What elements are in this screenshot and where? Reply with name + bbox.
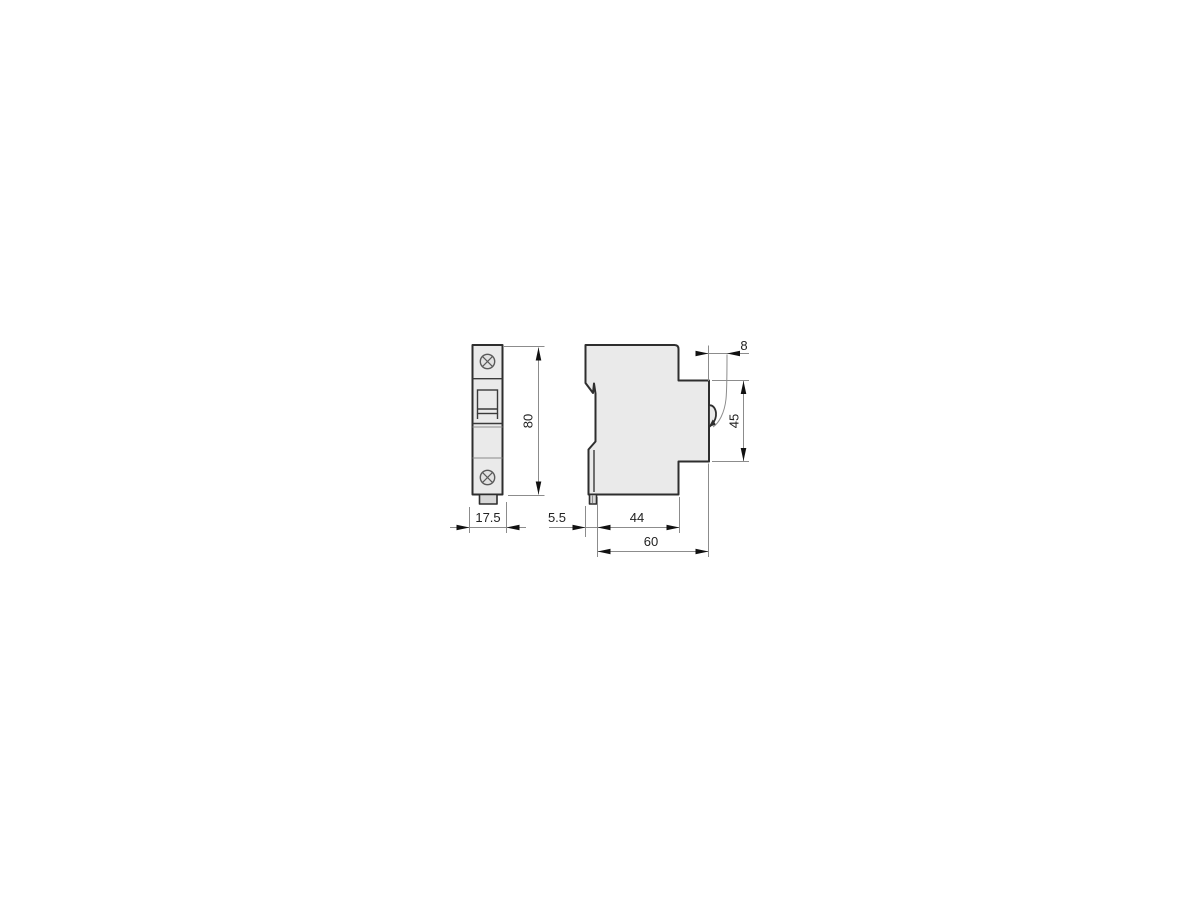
- dim-arrow: [727, 351, 740, 357]
- dim-label-front-height: 45: [726, 414, 741, 428]
- dim-label-base-depth: 44: [630, 510, 644, 525]
- dimension-height: 80: [504, 347, 545, 496]
- dim-arrow: [741, 381, 747, 394]
- dim-arrow: [741, 448, 747, 461]
- dim-arrow: [507, 525, 520, 531]
- dim-arrow: [573, 525, 586, 531]
- dim-label-handle-offset: 8: [740, 338, 747, 353]
- dimension-width: 17.5: [450, 502, 526, 533]
- dim-label-rail-offset: 5.5: [548, 510, 566, 525]
- dimension-drawing: 80 17.5 8 45 5.5: [0, 0, 1200, 900]
- dimension-base-depth: 44: [598, 497, 680, 557]
- side-view: [586, 345, 717, 504]
- dim-arrow: [598, 525, 611, 531]
- dim-arrow: [696, 549, 709, 555]
- screw-terminal-top-icon: [480, 354, 494, 368]
- screw-terminal-bottom-icon: [480, 470, 494, 484]
- dim-label-total-depth: 60: [644, 534, 658, 549]
- toggle-lever: [709, 405, 716, 427]
- dim-arrow: [457, 525, 470, 531]
- dimension-front-height: 45: [712, 381, 749, 462]
- front-view-foot: [480, 495, 498, 505]
- dimension-rail-offset: 5.5: [548, 506, 598, 537]
- dim-arrow: [667, 525, 680, 531]
- dim-arrow: [536, 348, 542, 361]
- dim-arrow: [598, 549, 611, 555]
- dim-label-width: 17.5: [475, 510, 500, 525]
- dim-arrow: [696, 351, 709, 357]
- dim-label-height: 80: [520, 414, 535, 428]
- side-view-body: [586, 345, 710, 495]
- drawing-canvas: 80 17.5 8 45 5.5: [0, 0, 1200, 900]
- dim-arrow: [536, 482, 542, 495]
- front-view: [473, 345, 503, 504]
